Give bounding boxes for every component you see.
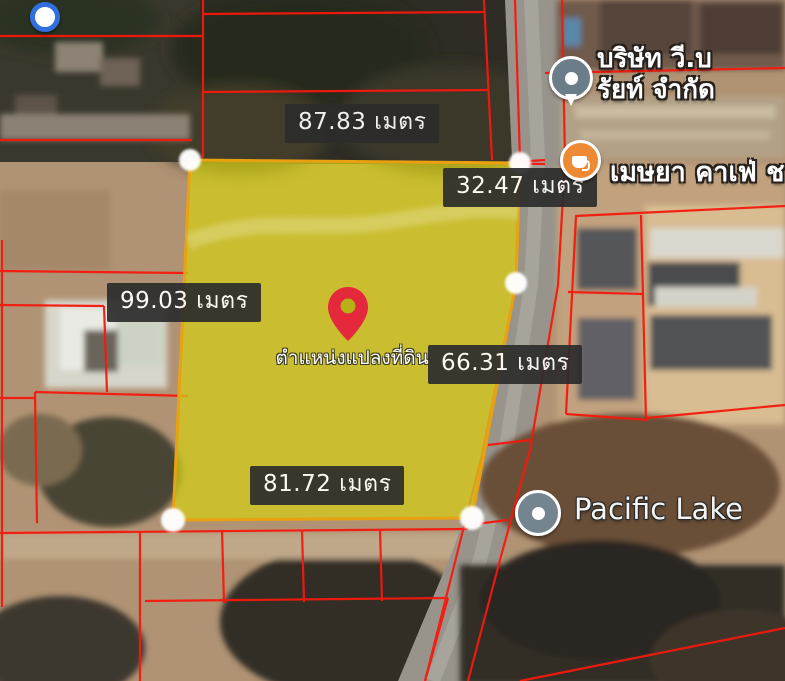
measurement-label-top: 87.83 เมตร — [285, 104, 439, 143]
poi-label-company[interactable]: บริษัท วี.บ รัยท์ จำกัด — [597, 44, 715, 105]
parcel-vertex-dot — [161, 508, 185, 532]
poi-company-line2: รัยท์ จำกัด — [597, 75, 715, 106]
pin-icon — [326, 285, 370, 343]
measurement-label-bottom: 81.72 เมตร — [250, 466, 404, 505]
poi-company-line1: บริษัท วี.บ — [597, 44, 715, 75]
blue-dot-marker-icon[interactable] — [30, 2, 60, 32]
poi-label-cafe[interactable]: เมษยา คาเฟ่ ช — [610, 150, 785, 193]
measurement-label-left: 99.03 เมตร — [107, 283, 261, 322]
poi-label-lake[interactable]: Pacific Lake — [574, 492, 743, 526]
map-viewport[interactable]: 87.83 เมตร 32.47 เมตร 99.03 เมตร 66.31 เ… — [0, 0, 785, 681]
measurement-label-right-lower: 66.31 เมตร — [428, 345, 582, 384]
cafe-cup-handle — [582, 160, 590, 171]
pin-caption: ตำแหน่งแปลงที่ดิน — [263, 343, 441, 373]
parcel-pin-marker[interactable] — [326, 285, 370, 343]
lake-poi-icon[interactable] — [515, 490, 561, 536]
parcel-vertex-dot — [460, 506, 484, 530]
parcel-vertex-dot — [179, 149, 201, 171]
cafe-icon[interactable] — [560, 140, 601, 181]
place-poi-icon[interactable] — [549, 56, 593, 100]
parcel-vertex-dot — [505, 272, 527, 294]
